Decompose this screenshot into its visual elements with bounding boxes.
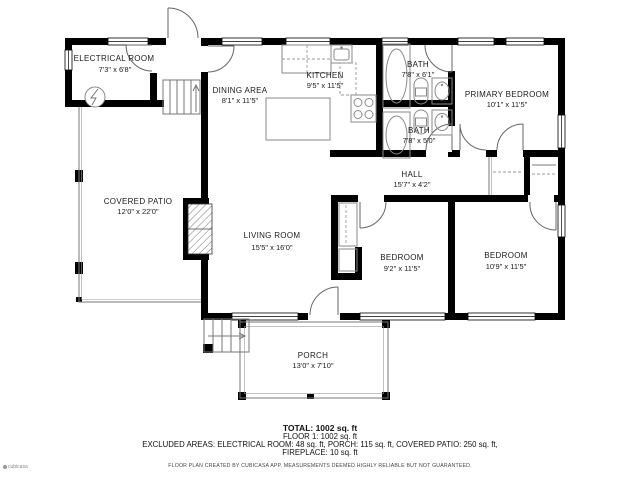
window-icon <box>506 38 544 45</box>
window-icon <box>558 115 565 148</box>
excluded-areas-line2: FIREPLACE: 10 sq. ft <box>0 449 640 457</box>
disclaimer: FLOOR PLAN CREATED BY CUBICASA APP. MEAS… <box>0 463 640 469</box>
bath1-door-icon <box>425 45 452 72</box>
bedroom-mid-closet <box>339 203 357 271</box>
primary-bedroom-hall-door-icon <box>497 124 523 150</box>
room-label-dining: DINING AREA 8'1" x 11'5" <box>213 86 268 105</box>
hall-closets <box>489 157 556 195</box>
svg-text:7'8" x 6'1": 7'8" x 6'1" <box>402 70 435 79</box>
kitchen-sink-icon <box>331 45 352 63</box>
svg-text:BEDROOM: BEDROOM <box>380 253 423 262</box>
svg-text:BEDROOM: BEDROOM <box>484 251 527 260</box>
primary-bedroom-door-icon <box>460 124 486 150</box>
svg-text:DINING AREA: DINING AREA <box>213 86 268 95</box>
bedroom-right-door-icon <box>530 202 556 230</box>
porch-outline <box>240 322 388 398</box>
floor-plan-drawing: ELECTRICAL ROOM 7'3" x 6'8" DINING AREA … <box>0 0 640 480</box>
svg-text:15'7" x 4'2": 15'7" x 4'2" <box>394 180 431 189</box>
entry-door-icon <box>168 8 198 38</box>
window-icon <box>65 50 72 70</box>
room-label-bath1: BATH 7'8" x 6'1" <box>402 60 435 79</box>
svg-text:10'1" x 11'5": 10'1" x 11'5" <box>487 100 528 109</box>
vestibule-door-icon <box>208 46 234 72</box>
electrical-panel-icon <box>85 87 105 107</box>
svg-text:LIVING ROOM: LIVING ROOM <box>244 231 301 240</box>
room-label-bath2: BATH 7'8" x 5'0" <box>403 126 436 145</box>
svg-text:BATH: BATH <box>408 126 430 135</box>
cubicasa-watermark: cubicasa <box>3 464 28 470</box>
svg-text:7'8" x 5'0": 7'8" x 5'0" <box>403 136 436 145</box>
stove-icon <box>351 95 376 122</box>
bedroom-mid-door-icon <box>360 202 386 228</box>
room-label-porch: PORCH 13'0" x 7'10" <box>292 351 333 370</box>
room-label-electrical: ELECTRICAL ROOM 7'3" x 6'8" <box>74 54 155 74</box>
kitchen-fixtures <box>266 45 376 140</box>
window-icon <box>108 38 148 45</box>
window-icon <box>360 313 445 320</box>
floor-plan-page: ELECTRICAL ROOM 7'3" x 6'8" DINING AREA … <box>0 0 640 480</box>
room-label-hall: HALL 15'7" x 4'2" <box>394 170 431 189</box>
cubicasa-logo-icon <box>3 465 7 469</box>
window-icon <box>468 313 535 320</box>
room-label-covered-patio: COVERED PATIO 12'0" x 22'0" <box>104 197 173 216</box>
room-label-living-room: LIVING ROOM 15'5" x 16'0" <box>244 231 301 252</box>
window-icon <box>458 38 494 45</box>
entry-stairs <box>163 80 200 114</box>
room-label-primary-bedroom: PRIMARY BEDROOM 10'1" x 11'5" <box>465 90 549 109</box>
dining-table <box>266 98 330 140</box>
svg-text:BATH: BATH <box>407 60 429 69</box>
svg-text:13'0" x 7'10": 13'0" x 7'10" <box>292 361 333 370</box>
window-icon <box>286 38 330 45</box>
svg-text:9'5" x 11'5": 9'5" x 11'5" <box>307 81 344 90</box>
svg-text:KITCHEN: KITCHEN <box>306 71 343 80</box>
room-label-bedroom-mid: BEDROOM 9'2" x 11'5" <box>380 253 423 273</box>
porch-door-icon <box>310 287 338 315</box>
svg-text:7'3" x 6'8": 7'3" x 6'8" <box>99 65 132 74</box>
svg-text:COVERED PATIO: COVERED PATIO <box>104 197 173 206</box>
window-icon <box>558 205 565 237</box>
svg-text:ELECTRICAL ROOM: ELECTRICAL ROOM <box>74 54 155 63</box>
fireplace-icon <box>183 198 212 260</box>
svg-text:8'1" x 11'5": 8'1" x 11'5" <box>222 96 259 105</box>
svg-text:12'0" x 22'0": 12'0" x 22'0" <box>117 207 158 216</box>
room-label-kitchen: KITCHEN 9'5" x 11'5" <box>306 71 343 90</box>
room-label-bedroom-right: BEDROOM 10'9" x 11'5" <box>484 251 527 271</box>
svg-text:HALL: HALL <box>401 170 422 179</box>
svg-text:10'9" x 11'5": 10'9" x 11'5" <box>486 262 527 271</box>
svg-text:PORCH: PORCH <box>298 351 328 360</box>
svg-text:15'5" x 16'0": 15'5" x 16'0" <box>251 243 292 252</box>
area-summary: TOTAL: 1002 sq. ft FLOOR 1: 1002 sq. ft … <box>0 424 640 469</box>
svg-text:PRIMARY BEDROOM: PRIMARY BEDROOM <box>465 90 549 99</box>
window-icon <box>222 38 262 45</box>
svg-text:9'2" x 11'5": 9'2" x 11'5" <box>384 264 421 273</box>
